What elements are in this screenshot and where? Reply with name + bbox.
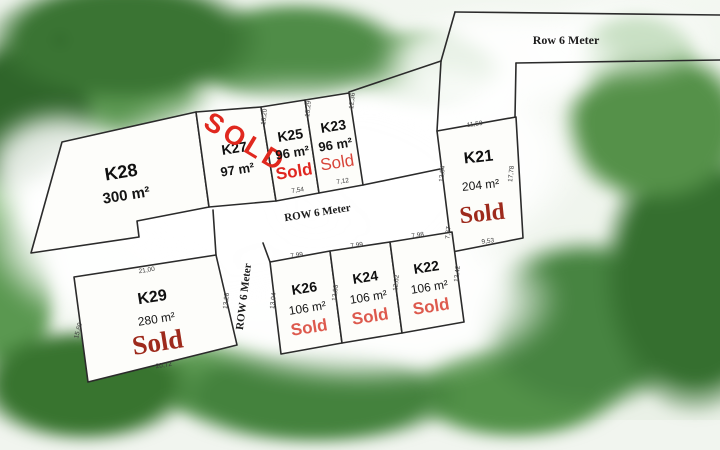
vertical-road-left-edge [213,210,216,255]
plot-k28-shape [31,112,209,253]
dim-k22-right: 12,42 [453,265,462,282]
estate-boundary-upper [349,61,441,92]
vertical-road-right-edge [263,243,270,262]
dim-k21-left-lower: 7,37 [444,226,452,240]
access-road-right-edge [515,63,516,117]
dim-k29-bottom: 20,72 [155,361,173,371]
vertical-road-label: ROW 6 Meter [234,263,254,331]
dim-k29-right: 13,28 [222,292,231,309]
top-road-label: Row 6 Meter [533,33,600,47]
plot-id: K21 [463,148,494,168]
top-road-left-bend [441,12,455,61]
plot-map: Row 6 Meter ROW 6 Meter ROW 6 Meter K28 … [0,0,720,420]
sold-stamp: Sold [458,199,506,230]
site-plan-screenshot: { "roads": { "top_label": "Row 6 Meter",… [0,0,720,420]
middle-road-label: ROW 6 Meter [284,202,352,224]
access-road-left-edge [437,61,441,131]
middle-road-upper-ext [363,169,440,185]
top-road-lower-edge [516,60,720,63]
dim-k23-right: 12,36 [348,92,357,109]
top-road-upper-edge [455,12,720,15]
